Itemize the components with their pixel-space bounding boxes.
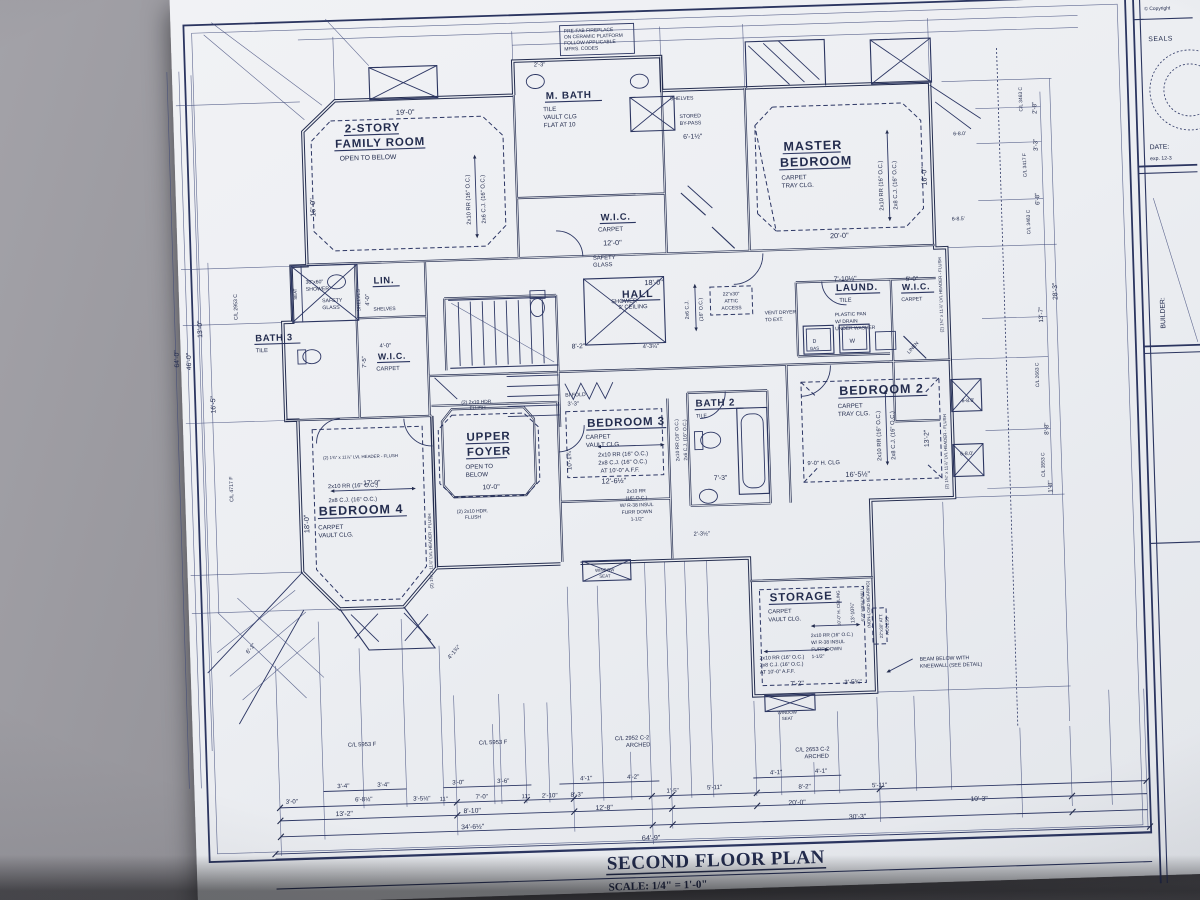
dim-label: 4'-3¼": [643, 344, 660, 351]
joist-note: W/ R-38 INSUL: [811, 639, 845, 646]
room-ceiling: TRAY CLG.: [782, 182, 815, 190]
builder-label: BUILDER:: [1159, 297, 1167, 329]
bypass-door: [712, 226, 735, 249]
tub-icon: [737, 407, 770, 494]
note-label: 22"x30" ATT.: [878, 613, 884, 638]
sink-icon: [327, 275, 345, 290]
dim-label: 13'-2": [335, 811, 353, 819]
right-dimensions: 2'-8" 3'-3" 6'-8" 13'-7" 8'-8" 1'-8" 28'…: [948, 85, 1066, 495]
centerline-label: C/L 3417 F: [1022, 153, 1029, 177]
note-label: (2) 1¾" x 11⅞" LVL HEADER - FLUSH: [427, 513, 434, 588]
sink-icon: [526, 74, 544, 89]
note-label: ACCESS: [884, 617, 890, 635]
joist-note: AT 10'-0" A.F.F.: [760, 669, 795, 676]
note-label: BI-FOLD: [565, 392, 586, 399]
dim-label: 18'-0": [644, 278, 663, 288]
joist-note: 2x10 RR (16" O.C.): [878, 160, 886, 210]
floor-plan-drawing: 2-STORY FAMILY ROOM OPEN TO BELOW 19'-0"…: [0, 0, 1200, 900]
dim-label: 3'-4": [377, 781, 390, 788]
bay-roof: [340, 606, 435, 651]
room-finish: TILE: [839, 298, 852, 304]
dim-label: 7'-5": [362, 356, 368, 368]
drawing-sheet: 2-STORY FAMILY ROOM OPEN TO BELOW 19'-0"…: [0, 0, 1200, 900]
dim-label: 2'-8": [1031, 102, 1038, 115]
dim-label: 2'-10": [542, 792, 558, 799]
note-label: WINDOW: [595, 567, 615, 573]
centerline-label: C/L 3463 C: [1018, 86, 1025, 111]
dim-label: 13'-2": [923, 429, 931, 447]
dim-label: 3'-4": [337, 783, 350, 790]
dim-label: 7'-2": [790, 680, 804, 687]
joist-note: 2x10 RR (16" O.C.): [328, 483, 378, 491]
room-label-family: 2-STORY: [345, 122, 401, 136]
note-label: 22"x30": [723, 291, 740, 298]
note-label: 6'-9" HIGH WALL: [859, 587, 865, 622]
room-finish: CARPET: [768, 609, 792, 616]
door-callout: 6-8.0': [953, 131, 966, 137]
dim-label: 1'-5": [666, 787, 679, 794]
note-label: (2) 2x10 HDR.: [461, 399, 492, 406]
blueprint-photo: 2-STORY FAMILY ROOM OPEN TO BELOW 19'-0"…: [0, 0, 1200, 900]
note-label: SAFETY: [322, 298, 343, 305]
joist-note: FURR DOWN: [622, 509, 653, 516]
room-finish: CARPET: [318, 524, 344, 532]
sink-icon: [630, 74, 648, 89]
note-label: BY-PASS: [680, 120, 702, 127]
note-label: W/ DRAIN: [835, 318, 858, 325]
exp-label: exp. 12-3: [1150, 156, 1172, 163]
joist-note: FURR DOWN: [811, 646, 842, 653]
note-label: FLUSH: [465, 514, 482, 521]
joist-note: 2x8 C.J. (16" O.C.): [892, 161, 900, 210]
dim-label: 6'-8½": [355, 796, 373, 804]
left-dimensions: 64'-0" 46'-0" 13'-0" 16'-5" C/L 2953 C C…: [172, 287, 463, 669]
room-ceiling: VAULT CLG.: [318, 531, 354, 539]
joist-note: 2x6 C.J. (16" O.C.): [480, 175, 488, 224]
centerline-label: C/L 2952 C-2: [615, 735, 649, 742]
beam-leader: [888, 659, 913, 672]
room-finish: CARPET: [585, 433, 611, 441]
dim-label: 16'-0": [919, 166, 929, 185]
dim-label: 6'-8": [1034, 192, 1041, 205]
dim-label: 3'-0": [452, 779, 465, 786]
date-label: DATE:: [1150, 144, 1170, 152]
note-label: SHELVES: [373, 306, 396, 313]
room-finish: TILE: [696, 413, 708, 419]
note-label: 30"x60": [305, 279, 323, 286]
roof-hatch: [205, 571, 326, 725]
note-label: GLASS: [593, 262, 613, 269]
note-label: SHOWER: [306, 286, 330, 293]
roof-hatch: [930, 84, 981, 131]
joist-note: 2x10 RR (16" O.C.): [674, 419, 681, 462]
dim-label: 2'-3": [534, 62, 546, 68]
sink-icon: [699, 489, 717, 504]
dim-label: 13'-0": [197, 320, 205, 338]
note-label: FLUSH: [469, 405, 486, 412]
note-label: 10'-0" H. CEILING: [835, 590, 841, 626]
joist-note: 2x8 C.J. (16" O.C.): [890, 411, 898, 460]
centerline-label: C/L 5953 F: [348, 742, 377, 749]
dim-label: 4'-1": [580, 775, 593, 782]
dim-label: 34'-6½": [461, 822, 485, 831]
dim-label: 4'-1": [815, 768, 828, 775]
room-ceiling: VAULT CLG: [586, 441, 620, 449]
note-label: WINDOW: [778, 710, 798, 716]
dimension-lines: [271, 765, 1154, 857]
door-callout: 6-8.0': [960, 451, 973, 457]
dim-label: 3'-5¾": [844, 679, 862, 687]
dim-label-total: 64'-9": [642, 833, 661, 843]
bottom-dimensions: C/L 5953 F C/L 5953 F C/L 2952 C-2 ARCHE…: [284, 723, 989, 854]
note-label: (2) 1¾" x 11⅞" LVL HEADER - FLUSH: [942, 414, 949, 489]
dim-label: 13'-7": [1038, 307, 1045, 323]
room-finish: CARPET: [781, 174, 807, 182]
room-label-bath3: BATH 3: [255, 331, 293, 343]
room-ceiling: FLAT AT 10: [544, 121, 577, 129]
room-ceiling: VAULT CLG.: [768, 616, 801, 623]
joist-note: 2x10 RR (16" O.C.): [811, 632, 854, 639]
dim-label: 12'-6½": [601, 476, 626, 486]
note-label: SEAT: [782, 716, 794, 721]
dim-label: 4'-2": [627, 774, 640, 781]
joist-note: 2x10 RR: [627, 488, 647, 495]
dim-label: 1'-8": [1047, 480, 1054, 493]
dim-label: 11": [522, 794, 530, 800]
dim-label: 3'-3": [1032, 139, 1039, 152]
note-label: (NON-LOAD BEARING): [865, 580, 871, 628]
dim-label: 3'-6": [497, 778, 510, 785]
plan-title: SECOND FLOOR PLAN: [607, 847, 826, 875]
plan-scale: SCALE: 1/4" = 1'-0": [608, 878, 707, 893]
note-label: UNDER WASHER: [835, 325, 876, 332]
dim-label: 10'-1¾": [566, 449, 574, 470]
centerline-label: C/L 2653 C-2: [795, 747, 829, 754]
room-ceiling: TRAY CLG.: [838, 410, 871, 418]
note-label: (2) 1¾" x 11⅞" LVL HEADER - FLUSH: [937, 257, 944, 332]
centerline-label: C/L 2663 C: [1034, 362, 1041, 387]
dim-label: 4'-0": [365, 294, 371, 306]
dim-label: 28'-3": [1052, 282, 1060, 300]
dim-label: 3'-0": [286, 798, 299, 805]
note-label: KNEEWALL (SEE DETAIL): [920, 662, 983, 670]
centerline-label: C/L 5953 F: [479, 740, 508, 747]
dim-label: 12'-0": [603, 238, 622, 248]
room-label-master: MASTER: [783, 138, 842, 154]
room-ceiling: 9' CEILING: [618, 304, 648, 311]
joist-note: 1-1/2": [631, 516, 644, 522]
shower-icon: [291, 264, 359, 322]
dim-label: 7'-10½": [834, 274, 858, 283]
room-finish: TILE: [256, 348, 269, 354]
note-label: STORED: [679, 113, 701, 120]
bay-window-icon: [951, 379, 982, 412]
room-finish: TILE: [543, 106, 556, 113]
room-label-mbath: M. BATH: [546, 90, 592, 102]
dim-label: 5'-11": [707, 784, 723, 791]
dim-label: 19'-0": [396, 107, 415, 117]
dim-label: 8'-8": [1043, 422, 1050, 435]
dim-label: 8'-2": [572, 343, 586, 350]
centerline-label: C/L 3463 C: [1026, 209, 1033, 234]
note-label: SEAT: [293, 288, 298, 300]
note-label: (2) 1¾" x 11⅞" LVL HEADER - FLUSH: [323, 453, 398, 460]
joist-note: (16" O.C.): [625, 495, 647, 502]
note-label: LINEN: [906, 340, 921, 355]
dim-label: 20'-0": [788, 799, 806, 807]
centerline-label: C/L 2953 C: [233, 294, 240, 320]
bypass-door: [681, 192, 706, 216]
note-label: PLASTIC PAN: [835, 311, 867, 318]
note-label: SAFETY: [593, 255, 616, 262]
dim-label: 46'-0": [186, 352, 194, 370]
dim-label: 4'-1": [770, 769, 783, 776]
joist-note: 1-1/2": [811, 654, 824, 660]
room-finish: CARPET: [376, 366, 400, 373]
room-label-foyer: FOYER: [467, 445, 512, 458]
dim-label: 16'-5½": [845, 469, 870, 479]
joist-note: W/ R-38 INSUL: [620, 502, 654, 509]
dim-label: 16'-5": [210, 395, 218, 413]
room-label-linen: LIN.: [373, 274, 394, 286]
joist-note: 2x10 RR (16" O.C.): [876, 411, 884, 461]
dim-label: 11": [440, 797, 448, 803]
window-features: [188, 35, 999, 729]
note-label: SHELVES: [670, 96, 694, 103]
dim-label: 8'-3": [570, 791, 583, 798]
room-ceiling: VAULT CLG: [543, 113, 577, 121]
roof-hatch: [745, 39, 825, 87]
note-label: SEAT: [599, 573, 611, 578]
note-label: (2) 2x10 HDR.: [457, 508, 488, 515]
dim-label: 18'-0": [302, 514, 312, 533]
appliance-label: GAS: [810, 346, 819, 351]
note-label: SHELVES: [356, 288, 363, 311]
dim-label: 7'-0": [476, 793, 489, 800]
door-callout: 6-8.0': [961, 398, 974, 404]
chimney-icon: [630, 96, 675, 131]
dim-label: 5'-11": [872, 782, 888, 789]
note-label: ATTIC: [724, 298, 738, 304]
dim-label: 8'-10": [463, 808, 481, 816]
dim-label: 4'-1¾": [447, 644, 462, 660]
seals-label: SEALS: [1148, 35, 1173, 43]
toilet-icon: [694, 431, 721, 450]
dim-label: 3'-3": [567, 401, 579, 407]
dim-label: 4'-0": [379, 343, 391, 349]
centerline-label: ARCHED: [804, 754, 829, 761]
joist-note: AT 10'-0" A.F.F.: [601, 467, 641, 474]
centerline-label: C/L 4717 F: [229, 476, 236, 502]
dim-label: 3'-5½": [413, 795, 431, 803]
note-label: GLASS: [322, 305, 340, 312]
dim-label: 64'-0": [174, 350, 182, 368]
room-note: OPEN TO: [465, 463, 493, 471]
dim-label: 10'-3": [970, 796, 988, 804]
note-label: MFRS. CODES: [564, 45, 599, 52]
dim-label: 10'-0": [482, 484, 500, 492]
room-note: OPEN TO BELOW: [340, 154, 398, 163]
centerline-label: ARCHED: [626, 742, 651, 749]
room-label-laundry: LAUND.: [836, 282, 878, 294]
window-seat-icon: [870, 38, 931, 84]
room-note: BELOW: [466, 471, 489, 479]
appliance-label: D: [813, 339, 817, 345]
dim-label: 5'-0": [906, 276, 919, 283]
note-label: VENT DRYER: [765, 309, 797, 316]
note-label: TO EXT.: [765, 317, 784, 324]
dim-label: 2'-3½": [694, 530, 711, 538]
joist-note: 2x10 RR (16" O.C.): [598, 451, 648, 459]
toilet-icon: [298, 349, 321, 364]
room-finish: CARPET: [901, 296, 923, 303]
dim-label: 13'-10¾": [850, 602, 857, 623]
dim-label: 16'-0": [308, 198, 318, 217]
bay-window-icon: [953, 444, 984, 477]
dim-label: 20'-0": [830, 231, 849, 241]
window-seat-icon: [369, 66, 438, 100]
title-block: © Copyright SEALS DATE: exp. 12-3 BUILDE…: [1115, 0, 1200, 884]
title-zone: SECOND FLOOR PLAN SCALE: 1/4" = 1'-0": [276, 832, 1153, 900]
room-label-wic: W.I.C.: [378, 351, 406, 362]
centerline-label: C/L 3553 C: [1040, 452, 1047, 477]
dim-label: 30'-3": [849, 813, 867, 821]
dim-label: 12'-8": [595, 804, 613, 812]
dim-label: 6'-1½": [683, 132, 703, 141]
note-label: ACCESS: [721, 305, 742, 312]
door-callout: 6-8.5': [952, 216, 965, 222]
room-finish: CARPET: [598, 226, 624, 234]
joist-note: 2x10 RR (16" O.C.): [465, 174, 473, 224]
room-label-wic: W.I.C.: [600, 211, 630, 223]
dim-label: 7'-3": [714, 475, 728, 482]
joist-note: 2x8 C.J. (16" O.C.): [760, 661, 804, 668]
room-label-bath2: BATH 2: [695, 397, 735, 409]
joist-note: 2x6 C.J.: [684, 300, 691, 319]
dim-label: 8'-2": [798, 783, 811, 790]
copyright-note: © Copyright: [1144, 4, 1171, 12]
appliance-label: W: [850, 339, 856, 345]
joist-note: (16" O.C.): [698, 297, 705, 321]
note-label: 9'-0" H. CLG: [807, 460, 840, 467]
room-finish: CARPET: [838, 402, 864, 410]
joist-note: 2x8 C.J. (16" O.C.): [598, 459, 647, 467]
room-label-foyer: UPPER: [466, 430, 511, 443]
room-label-hall: HALL: [622, 288, 654, 301]
